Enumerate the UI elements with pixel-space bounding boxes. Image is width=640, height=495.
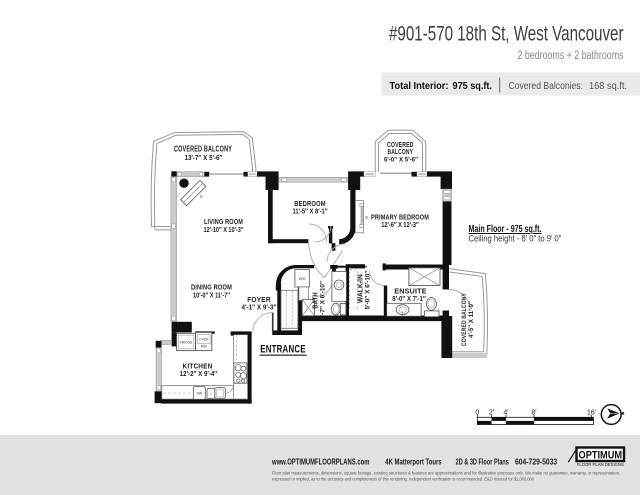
svg-text:Ceiling height - 8′ 0″ to 9′ 0: Ceiling height - 8′ 0″ to 9′ 0″ — [469, 234, 563, 245]
svg-text:13′-7″ X 5′-6″: 13′-7″ X 5′-6″ — [185, 153, 223, 162]
svg-text:#901-570 18th St, West Vancouv: #901-570 18th St, West Vancouver — [389, 23, 624, 46]
svg-text:www.OPTIMUMFLOORPLANS.com: www.OPTIMUMFLOORPLANS.com — [271, 457, 369, 467]
svg-text:10′-0″ X 11′-7″: 10′-0″ X 11′-7″ — [193, 291, 230, 300]
svg-text:8′-0″ X 7′-1″: 8′-0″ X 7′-1″ — [392, 294, 426, 303]
svg-text:12′-2″ X 9′-4″: 12′-2″ X 9′-4″ — [180, 369, 218, 378]
svg-text:fp: fp — [365, 215, 368, 219]
svg-text:6′-0″ X 5′-6″: 6′-0″ X 5′-6″ — [384, 156, 419, 163]
svg-text:12′-10″ X 10′-3″: 12′-10″ X 10′-3″ — [204, 225, 244, 234]
svg-text:6′-7″ X 6′-10″: 6′-7″ X 6′-10″ — [320, 280, 327, 320]
svg-text:FLOOR PLAN DESIGNS: FLOOR PLAN DESIGNS — [577, 462, 624, 467]
svg-text:ENTRANCE: ENTRANCE — [260, 344, 306, 356]
svg-text:168 sq.ft.: 168 sq.ft. — [589, 80, 627, 92]
svg-text:4′-5″ X 11′-9″: 4′-5″ X 11′-9″ — [468, 301, 475, 338]
svg-text:2D & 3D Floor Plans: 2D & 3D Floor Plans — [456, 457, 509, 467]
svg-text:11′-5″ X 8′-1″: 11′-5″ X 8′-1″ — [293, 207, 328, 216]
svg-text:5′-0″ X 6′-10″: 5′-0″ X 6′-10″ — [365, 270, 372, 310]
svg-text:4′-1″ X 9′-3″: 4′-1″ X 9′-3″ — [242, 303, 277, 312]
svg-text:Floor plan measurements, dimen: Floor plan measurements, dimensions, squ… — [272, 471, 620, 476]
svg-text:expressed or implied, as to th: expressed or implied, as to the accuracy… — [272, 477, 535, 482]
svg-text:12′-6″ X 12′-3″: 12′-6″ X 12′-3″ — [381, 220, 419, 229]
svg-text:MW: MW — [201, 344, 208, 348]
svg-text:Total Interior:: Total Interior: — [390, 80, 449, 92]
svg-text:BATH: BATH — [311, 292, 320, 309]
svg-text:604-729-5033: 604-729-5033 — [515, 457, 558, 467]
svg-text:COVERED BALCONY: COVERED BALCONY — [461, 293, 468, 346]
svg-text:DW: DW — [197, 392, 202, 396]
svg-text:OPTIMUM: OPTIMUM — [579, 450, 623, 462]
svg-text:OVEN: OVEN — [199, 337, 209, 341]
svg-text:2 bedrooms + 2 bathrooms: 2 bedrooms + 2 bathrooms — [518, 50, 624, 62]
svg-text:FRIDGE: FRIDGE — [180, 341, 193, 345]
svg-text:975 sq.ft.: 975 sq.ft. — [453, 80, 493, 92]
svg-text:4K Matterport Tours: 4K Matterport Tours — [385, 457, 442, 467]
svg-text:WALK-IN: WALK-IN — [355, 274, 364, 303]
svg-text:Covered Balconies:: Covered Balconies: — [509, 80, 584, 92]
svg-text:BALCONY: BALCONY — [388, 149, 414, 156]
svg-text:COVERED: COVERED — [387, 142, 414, 149]
svg-text:W/D: W/D — [299, 277, 306, 281]
svg-text:fp: fp — [200, 195, 203, 199]
